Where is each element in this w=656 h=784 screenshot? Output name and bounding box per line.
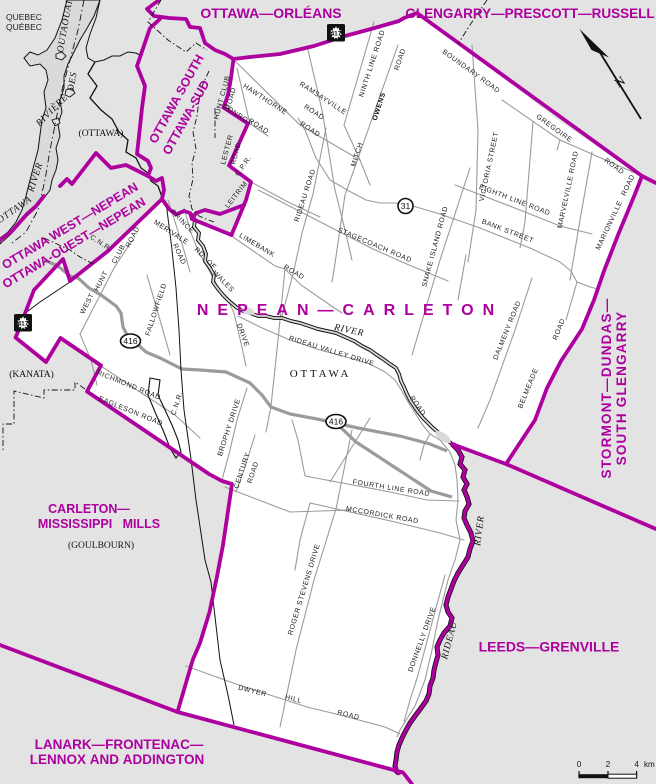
svg-text:417: 417 [331,31,342,38]
svg-text:416: 416 [329,417,343,427]
svg-text:(GOULBOURN): (GOULBOURN) [68,540,134,551]
svg-text:(OTTAWA): (OTTAWA) [79,128,124,139]
svg-text:31: 31 [401,201,411,211]
svg-text:SOUTH GLENGARRY: SOUTH GLENGARRY [614,311,629,466]
svg-text:417: 417 [18,321,29,328]
svg-text:OTTAWA: OTTAWA [290,368,351,380]
svg-text:LANARK—FRONTENAC—: LANARK—FRONTENAC— [35,737,204,752]
svg-text:GLENGARRY—PRESCOTT—RUSSELL: GLENGARRY—PRESCOTT—RUSSELL [405,6,654,21]
svg-text:LEEDS—GRENVILLE: LEEDS—GRENVILLE [479,639,620,655]
svg-text:STORMONT—DUNDAS—: STORMONT—DUNDAS— [599,298,614,479]
svg-text:(KANATA): (KANATA) [9,369,54,380]
svg-text:MISSISSIPPI MILLS: MISSISSIPPI MILLS [38,517,160,531]
svg-text:4: 4 [634,760,639,769]
svg-text:416: 416 [123,336,137,346]
svg-text:km: km [644,760,655,769]
svg-text:OTTAWA—ORLÉANS: OTTAWA—ORLÉANS [200,5,341,21]
svg-text:2: 2 [606,760,611,769]
svg-text:0: 0 [577,760,582,769]
svg-text:LENNOX AND ADDINGTON: LENNOX AND ADDINGTON [30,752,205,767]
svg-text:QUEBEC: QUEBEC [6,12,42,22]
svg-text:NEPEAN—CARLETON: NEPEAN—CARLETON [197,302,503,319]
svg-text:CARLETON—: CARLETON— [48,502,130,516]
svg-text:QUÉBEC: QUÉBEC [6,22,42,32]
